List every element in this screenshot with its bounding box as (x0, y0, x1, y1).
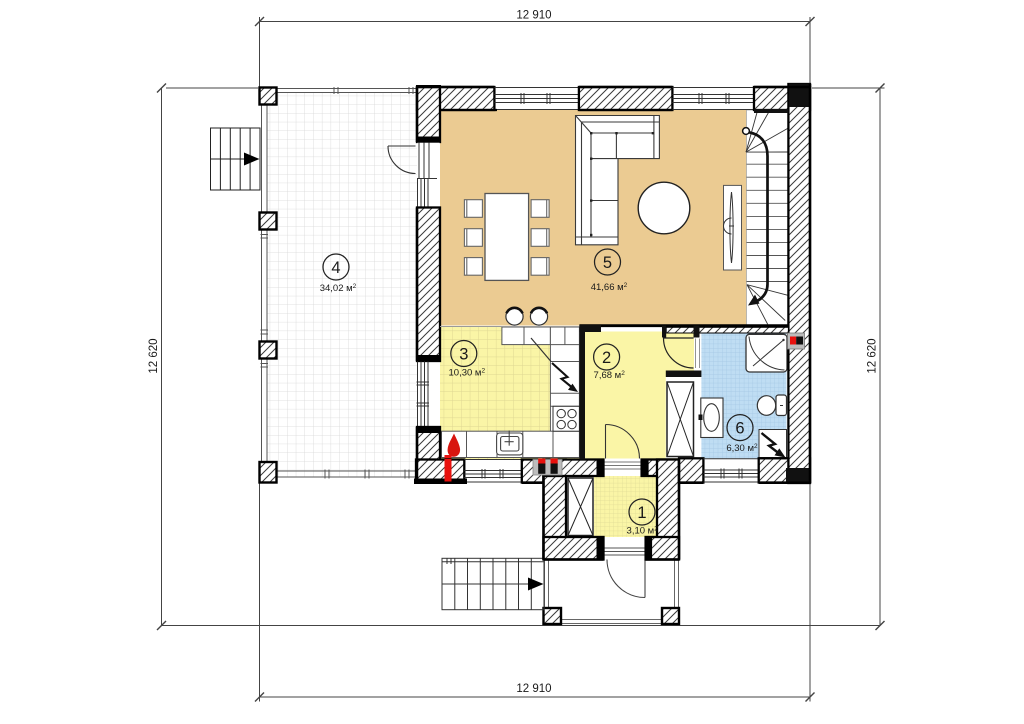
svg-text:12 910: 12 910 (516, 683, 551, 695)
svg-text:7,68 м2: 7,68 м2 (594, 370, 626, 381)
svg-text:41,66 м2: 41,66 м2 (591, 282, 628, 293)
svg-text:2: 2 (602, 349, 611, 367)
svg-text:34,02 м2: 34,02 м2 (320, 283, 357, 294)
svg-text:4: 4 (331, 259, 340, 277)
svg-text:12 910: 12 910 (516, 10, 551, 22)
svg-text:6: 6 (735, 419, 744, 437)
svg-text:12 620: 12 620 (867, 338, 879, 373)
svg-text:12 620: 12 620 (148, 338, 160, 373)
svg-text:6,30 м2: 6,30 м2 (726, 443, 758, 454)
svg-text:1: 1 (637, 504, 646, 522)
svg-text:3: 3 (459, 345, 468, 363)
svg-text:3,10 м2: 3,10 м2 (627, 526, 659, 537)
svg-text:5: 5 (603, 254, 612, 272)
svg-text:10,30 м2: 10,30 м2 (449, 368, 486, 379)
